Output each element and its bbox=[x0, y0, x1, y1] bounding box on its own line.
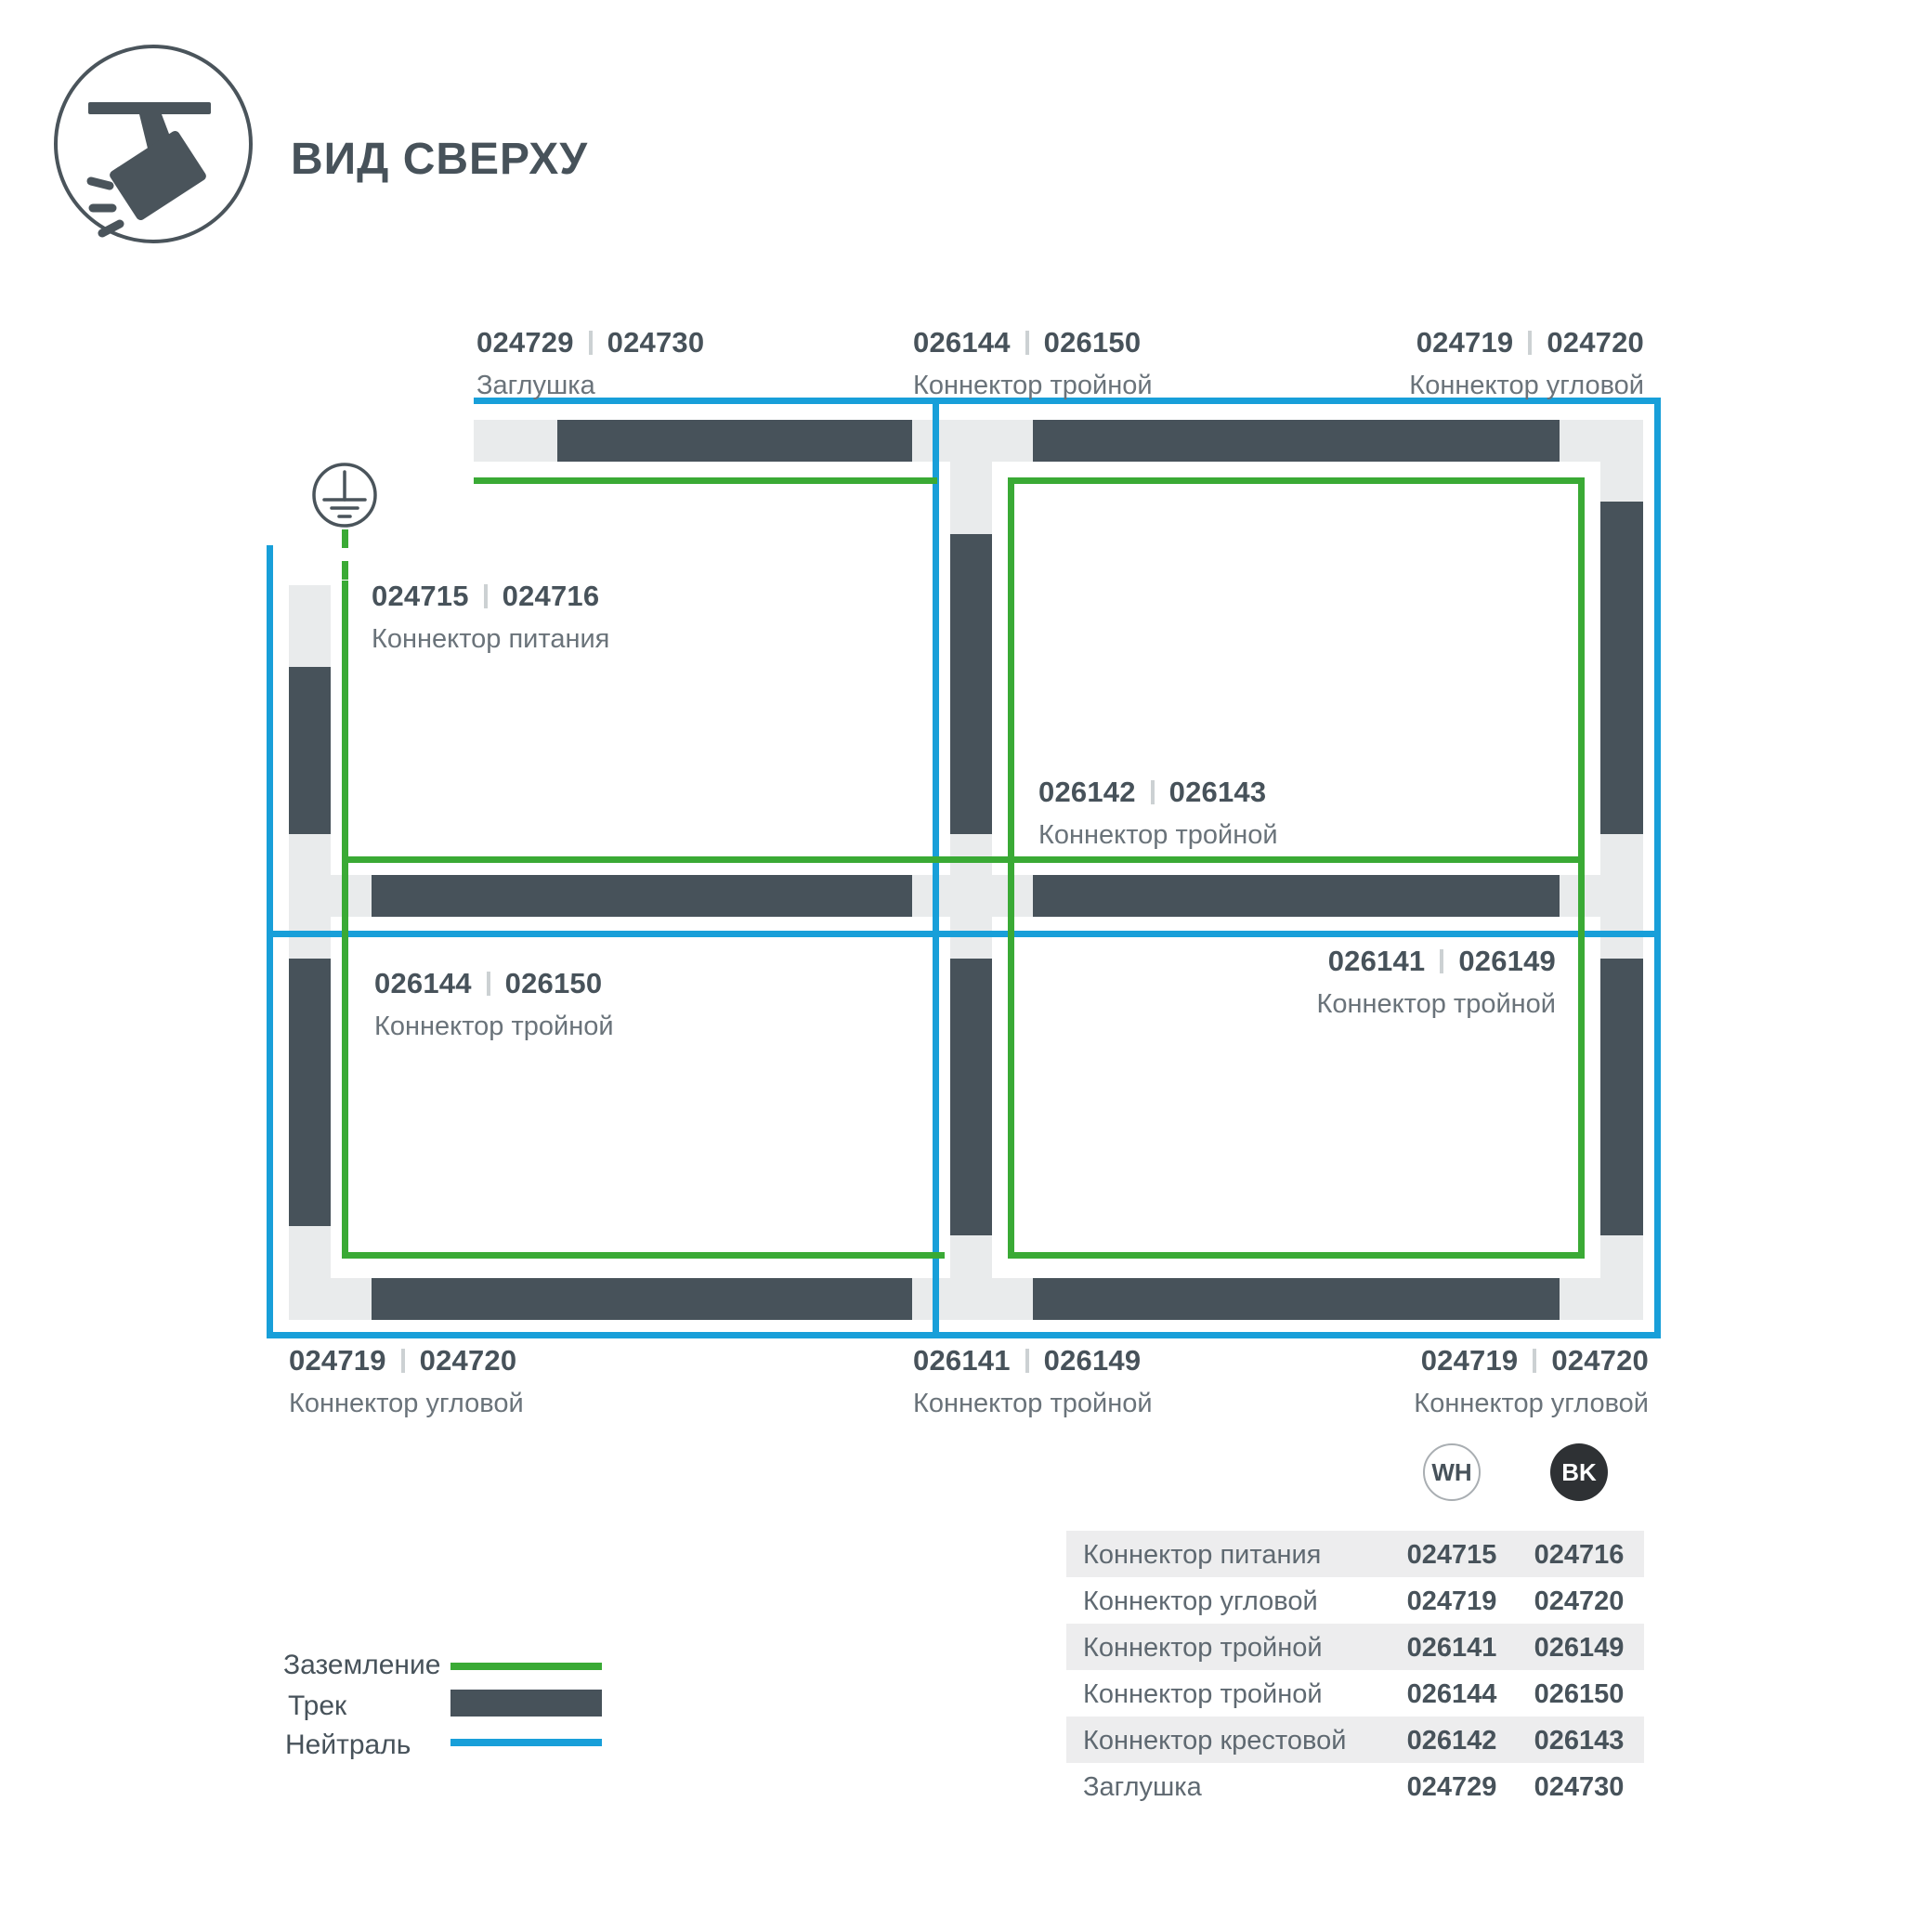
part-label-end-cap: 024729024730 Заглушка bbox=[476, 327, 704, 400]
power-feed-connector bbox=[289, 585, 331, 667]
part-name: Коннектор крестовой bbox=[1083, 1726, 1346, 1756]
legend-label-neutral: Нейтраль bbox=[285, 1730, 411, 1761]
part-codes: 024715024716 bbox=[372, 581, 609, 612]
part-label-corner-bottom-left: 024719024720 Коннектор угловой bbox=[289, 1345, 524, 1418]
end-cap-connector bbox=[474, 420, 557, 462]
divider bbox=[484, 584, 488, 608]
legend-neutral-swatch bbox=[450, 1739, 602, 1746]
track-segment bbox=[1033, 875, 1560, 917]
part-codes: 024719024720 bbox=[289, 1345, 524, 1377]
table-row: Коннектор тройной 026144 026150 bbox=[1066, 1670, 1644, 1717]
code-black: 026149 bbox=[1523, 1633, 1635, 1664]
part-name: Заглушка bbox=[1083, 1772, 1202, 1803]
part-label-power-feed: 024715024716 Коннектор питания bbox=[372, 581, 609, 654]
table-row: Заглушка 024729 024730 bbox=[1066, 1763, 1644, 1809]
page: ВИД СВЕРХУ bbox=[0, 0, 1932, 1932]
corner-connector-leg bbox=[1600, 462, 1643, 502]
ground-line-left bbox=[342, 581, 348, 1259]
table-row: Коннектор угловой 024719 024720 bbox=[1066, 1577, 1644, 1624]
part-name: Коннектор тройной bbox=[1038, 820, 1278, 850]
track-segment bbox=[372, 1278, 912, 1320]
track-segment bbox=[289, 667, 331, 834]
t-connector bbox=[912, 420, 1033, 462]
neutral-line-bottom bbox=[267, 1332, 1661, 1338]
track-segment bbox=[1600, 502, 1643, 834]
ground-line-top-left bbox=[474, 477, 937, 484]
track-segment bbox=[950, 959, 992, 1235]
divider bbox=[1533, 1349, 1536, 1373]
track-segment bbox=[1033, 1278, 1560, 1320]
ground-line-right bbox=[1578, 477, 1585, 1259]
part-codes: 026144026150 bbox=[374, 968, 614, 999]
ground-line-bottom-right bbox=[1008, 1252, 1585, 1259]
part-codes: 024719024720 bbox=[1414, 1345, 1649, 1377]
neutral-line-right bbox=[1654, 398, 1661, 1338]
t-connector-leg bbox=[331, 875, 372, 917]
divider bbox=[589, 331, 593, 355]
part-codes: 024719024720 bbox=[1409, 327, 1644, 359]
code-white: 026144 bbox=[1396, 1679, 1508, 1710]
neutral-line-middle bbox=[267, 931, 1661, 937]
part-name: Коннектор тройной bbox=[1083, 1679, 1323, 1710]
track-segment bbox=[289, 959, 331, 1226]
part-codes: 026141026149 bbox=[1316, 946, 1556, 977]
code-black: 024716 bbox=[1523, 1540, 1635, 1571]
ground-line-dashed bbox=[342, 529, 348, 583]
part-name: Коннектор угловой bbox=[1083, 1586, 1318, 1617]
code-white: 026142 bbox=[1396, 1726, 1508, 1756]
ground-line-top-right bbox=[1008, 477, 1585, 484]
part-label-t-connector-bottom: 026141026149 Коннектор тройной bbox=[913, 1345, 1153, 1418]
ground-line-middle bbox=[342, 856, 1585, 863]
cross-connector-leg bbox=[950, 834, 992, 959]
code-white: 024715 bbox=[1396, 1540, 1508, 1571]
track-segment bbox=[1600, 959, 1643, 1235]
code-black: 024730 bbox=[1523, 1772, 1635, 1803]
color-chip-white: WH bbox=[1423, 1443, 1481, 1501]
code-black: 024720 bbox=[1523, 1586, 1635, 1617]
corner-connector-leg bbox=[1560, 1278, 1600, 1320]
part-label-t-connector-mid-right: 026141026149 Коннектор тройной bbox=[1316, 946, 1556, 1019]
part-name: Коннектор угловой bbox=[1414, 1389, 1649, 1418]
corner-connector bbox=[289, 1226, 331, 1320]
divider bbox=[1025, 331, 1029, 355]
divider bbox=[1528, 331, 1532, 355]
part-codes: 026144026150 bbox=[913, 327, 1153, 359]
table-row: Коннектор питания 024715 024716 bbox=[1066, 1531, 1644, 1577]
part-label-corner-bottom-right: 024719024720 Коннектор угловой bbox=[1414, 1345, 1649, 1418]
legend-track-swatch bbox=[450, 1690, 602, 1717]
part-label-corner-top-right: 024719024720 Коннектор угловой bbox=[1409, 327, 1644, 400]
corner-connector bbox=[1560, 420, 1643, 462]
code-white: 024719 bbox=[1396, 1586, 1508, 1617]
track-segment bbox=[372, 875, 912, 917]
part-codes: 026141026149 bbox=[913, 1345, 1153, 1377]
part-codes: 024729024730 bbox=[476, 327, 704, 359]
ground-line-bottom-left bbox=[342, 1252, 945, 1259]
part-name: Коннектор тройной bbox=[374, 1012, 614, 1041]
corner-connector bbox=[1600, 1235, 1643, 1320]
part-name: Коннектор угловой bbox=[289, 1389, 524, 1418]
track-segment bbox=[1033, 420, 1560, 462]
divider bbox=[401, 1349, 405, 1373]
ground-icon bbox=[307, 459, 385, 533]
color-chip-black: BK bbox=[1550, 1443, 1608, 1501]
part-name: Коннектор тройной bbox=[913, 1389, 1153, 1418]
code-black: 026150 bbox=[1523, 1679, 1635, 1710]
code-white: 026141 bbox=[1396, 1633, 1508, 1664]
part-name: Коннектор питания bbox=[1083, 1540, 1321, 1571]
code-black: 026143 bbox=[1523, 1726, 1635, 1756]
part-label-t-connector-top: 026144026150 Коннектор тройной bbox=[913, 327, 1153, 400]
t-connector-leg bbox=[950, 1235, 992, 1278]
t-connector bbox=[912, 1278, 1033, 1320]
part-name: Заглушка bbox=[476, 371, 704, 400]
part-codes: 026142026143 bbox=[1038, 777, 1278, 808]
t-connector bbox=[1600, 834, 1643, 959]
part-name: Коннектор тройной bbox=[1316, 989, 1556, 1019]
table-row: Коннектор тройной 026141 026149 bbox=[1066, 1624, 1644, 1670]
code-white: 024729 bbox=[1396, 1772, 1508, 1803]
legend-ground-swatch bbox=[450, 1663, 602, 1670]
divider bbox=[1151, 780, 1155, 804]
divider bbox=[487, 972, 490, 996]
legend-label-track: Трек bbox=[288, 1690, 346, 1722]
part-name: Коннектор угловой bbox=[1409, 371, 1644, 400]
part-label-cross-connector: 026142026143 Коннектор тройной bbox=[1038, 777, 1278, 850]
t-connector bbox=[289, 834, 331, 959]
neutral-line-center bbox=[933, 398, 939, 1338]
divider bbox=[1440, 949, 1443, 973]
t-connector-leg bbox=[950, 462, 992, 534]
table-row: Коннектор крестовой 026142 026143 bbox=[1066, 1717, 1644, 1763]
spotlight-icon bbox=[46, 37, 260, 251]
part-name: Коннектор питания bbox=[372, 624, 609, 654]
part-name: Коннектор тройной bbox=[1083, 1633, 1323, 1664]
ground-line-center bbox=[1008, 477, 1014, 1259]
track-segment bbox=[950, 534, 992, 834]
divider bbox=[1025, 1349, 1029, 1373]
track-segment bbox=[557, 420, 912, 462]
part-name: Коннектор тройной bbox=[913, 371, 1153, 400]
part-label-t-connector-mid-left: 026144026150 Коннектор тройной bbox=[374, 968, 614, 1041]
legend-label-ground: Заземление bbox=[283, 1650, 440, 1681]
page-title: ВИД СВЕРХУ bbox=[291, 134, 588, 185]
neutral-line-left bbox=[267, 545, 273, 1338]
corner-connector-leg bbox=[331, 1278, 372, 1320]
